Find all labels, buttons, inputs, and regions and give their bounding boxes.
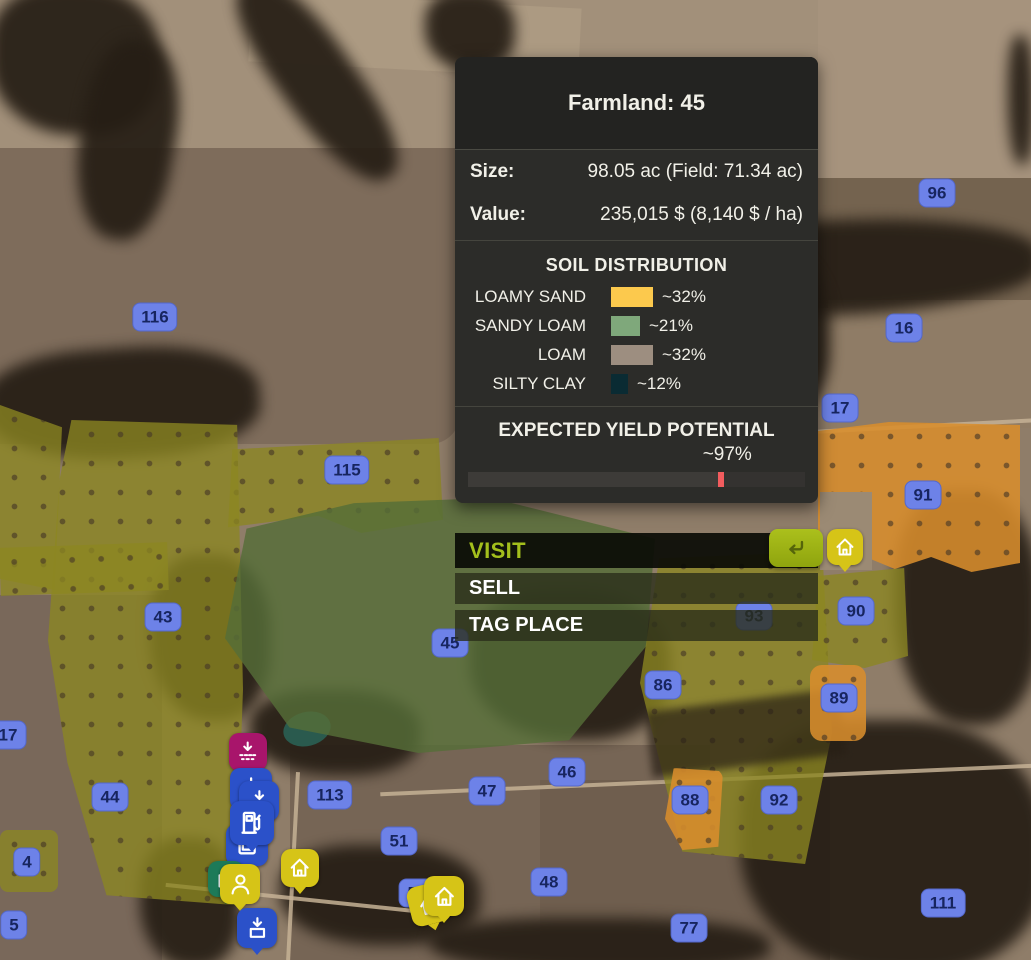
field-label-16[interactable]: 16 [886, 314, 923, 343]
field-label-96[interactable]: 96 [919, 179, 956, 208]
return-arrow-icon [783, 535, 809, 561]
soil-color-swatch [611, 374, 628, 394]
forest-patch [1008, 35, 1031, 165]
soil-section-title: SOIL DISTRIBUTION [455, 245, 818, 282]
field-label-44[interactable]: 44 [92, 783, 129, 812]
field-label-116[interactable]: 116 [132, 303, 177, 332]
soil-row: LOAMY SAND ~32% [455, 282, 818, 311]
soil-type-label: LOAMY SAND [455, 287, 586, 307]
yield-section-title: EXPECTED YIELD POTENTIAL [455, 411, 818, 444]
field-label-90[interactable]: 90 [838, 597, 875, 626]
unload-box-icon [243, 914, 272, 943]
yield-bar-marker [718, 472, 724, 487]
field-label-47[interactable]: 47 [469, 777, 506, 806]
unload-pallet-icon [234, 738, 261, 765]
soil-type-label: LOAM [455, 345, 586, 365]
field-label-48[interactable]: 48 [531, 868, 568, 897]
field-label-17[interactable]: 17 [0, 721, 26, 750]
field-label-5[interactable]: 5 [0, 911, 27, 940]
map-marker-player[interactable] [220, 864, 260, 904]
house-icon [286, 854, 313, 881]
field-label-91[interactable]: 91 [905, 481, 942, 510]
house-icon [430, 882, 459, 911]
map-marker-unload-pallet[interactable] [229, 733, 267, 771]
farmland-info-panel: Farmland: 45 Size: 98.05 ac (Field: 71.3… [455, 57, 818, 503]
soil-color-swatch [611, 345, 653, 365]
tag-place-button[interactable]: TAG PLACE [455, 610, 818, 641]
house-icon [832, 534, 858, 560]
sell-label: SELL [469, 577, 520, 600]
soil-type-label: SILTY CLAY [455, 374, 586, 394]
field-label-89[interactable]: 89 [821, 684, 858, 713]
field-label-115[interactable]: 115 [324, 456, 369, 485]
soil-percentage: ~32% [662, 287, 706, 307]
soil-percentage: ~32% [662, 345, 706, 365]
value-label: Value: [470, 204, 526, 226]
size-value: 98.05 ac (Field: 71.34 ac) [588, 161, 803, 183]
value-value: 235,015 $ (8,140 $ / ha) [600, 204, 803, 226]
tag-place-label: TAG PLACE [469, 614, 583, 637]
forest-patch [430, 918, 770, 960]
size-row: Size: 98.05 ac (Field: 71.34 ac) [455, 150, 818, 193]
soil-color-swatch [611, 287, 653, 307]
soil-color-swatch [611, 316, 640, 336]
field-label-86[interactable]: 86 [645, 671, 682, 700]
soil-row: SILTY CLAY ~12% [455, 369, 818, 398]
panel-header: Farmland: 45 [455, 57, 818, 150]
map-view[interactable]: Farmland: 45 Size: 98.05 ac (Field: 71.3… [0, 0, 1031, 960]
divider [455, 406, 818, 407]
map-marker-unload-box[interactable] [237, 908, 277, 948]
divider [455, 240, 818, 241]
field-label-77[interactable]: 77 [671, 914, 708, 943]
yield-value-wrap: ~97% [455, 444, 818, 470]
field-label-111[interactable]: 111 [921, 889, 966, 918]
field-overlay-left-strip[interactable] [0, 542, 169, 596]
fuel-station-icon [236, 807, 268, 839]
terrain-tan-topright [818, 0, 1031, 198]
yield-bar [468, 472, 805, 487]
soil-percentage: ~21% [649, 316, 693, 336]
field-label-4[interactable]: 4 [13, 848, 40, 877]
field-label-46[interactable]: 46 [549, 758, 586, 787]
field-label-51[interactable]: 51 [381, 827, 418, 856]
field-label-17[interactable]: 17 [822, 394, 859, 423]
soil-percentage: ~12% [637, 374, 681, 394]
size-label: Size: [470, 161, 514, 183]
soil-row: LOAM ~32% [455, 340, 818, 369]
map-marker-house[interactable] [424, 876, 464, 916]
map-marker-house[interactable] [827, 529, 863, 565]
soil-row: SANDY LOAM ~21% [455, 311, 818, 340]
panel-title: Farmland: 45 [568, 90, 705, 116]
field-label-43[interactable]: 43 [145, 603, 182, 632]
sell-button[interactable]: SELL [455, 573, 818, 604]
yield-value: ~97% [703, 444, 752, 466]
soil-type-label: SANDY LOAM [455, 316, 586, 336]
soil-distribution-list: LOAMY SAND ~32% SANDY LOAM ~21% LOAM ~32… [455, 282, 818, 398]
visit-button[interactable]: VISIT [455, 533, 818, 568]
map-marker-fuel-station[interactable] [230, 801, 274, 845]
map-marker-house[interactable] [281, 849, 319, 887]
field-label-92[interactable]: 92 [761, 786, 798, 815]
field-label-113[interactable]: 113 [307, 781, 352, 810]
value-row: Value: 235,015 $ (8,140 $ / ha) [455, 193, 818, 236]
player-icon [226, 870, 255, 899]
visit-label: VISIT [469, 538, 526, 564]
field-label-88[interactable]: 88 [672, 786, 709, 815]
return-key-button[interactable] [769, 529, 823, 567]
